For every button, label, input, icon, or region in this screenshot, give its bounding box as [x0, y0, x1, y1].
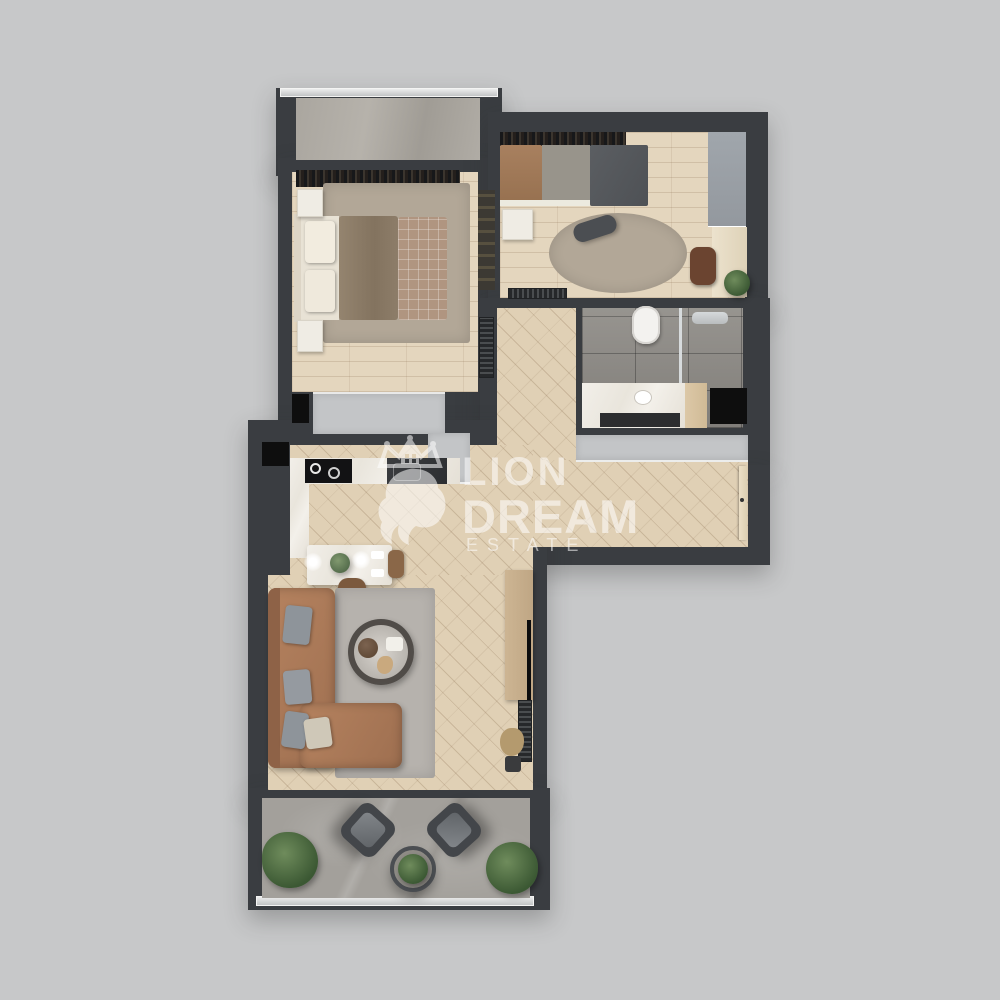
hall-closet-band [313, 392, 445, 434]
sofa-cushion [303, 716, 333, 749]
balcony-glass-railing [280, 88, 498, 97]
table-centerpiece [330, 553, 350, 573]
bedroom1-pillow [305, 270, 335, 312]
pendant-light [304, 553, 322, 571]
bedroom1-nightstand-top [297, 189, 323, 217]
entry-closet-band [576, 435, 748, 462]
bedroom1-nightstand-bottom [297, 320, 323, 352]
place-setting [371, 551, 384, 559]
terrace-table-plant [398, 854, 428, 884]
place-setting [371, 569, 384, 577]
bedroom1-door-opening [292, 394, 309, 423]
lion-crown-logo-icon [366, 434, 458, 548]
terrace-plant-left [262, 832, 318, 888]
terrace-plant-right [486, 842, 538, 894]
hallway-floor-corridor [497, 308, 576, 460]
utility-shaft-bathroom [710, 388, 747, 424]
sofa-backrest [268, 588, 280, 768]
entry-door [739, 466, 747, 540]
bedroom2-bed-sheet [542, 145, 590, 206]
vanity-under-counter [600, 413, 680, 427]
shower-fixture [692, 312, 728, 324]
pendant-light [352, 551, 370, 569]
floor-plan-render: LION DREAM ESTATE [0, 0, 1000, 1000]
shower-glass-panel [679, 308, 682, 385]
plant-pot [505, 756, 521, 772]
coffee-table-decor-bowl [358, 638, 378, 658]
bedroom1-pillow [305, 221, 335, 263]
bedroom1-plaid-duvet [398, 217, 447, 320]
bedroom2-blanket [590, 145, 648, 206]
dining-chair-right [388, 550, 404, 578]
bedroom1-blanket [339, 216, 398, 320]
bedroom1-radiator [479, 317, 494, 378]
bedroom1-bed-headboard [294, 214, 301, 322]
sofa-cushion [283, 669, 313, 705]
balcony-floor [296, 98, 480, 160]
tv-screen [527, 620, 531, 702]
cooktop-burner [328, 467, 340, 479]
watermark-brand-line3: ESTATE [466, 535, 587, 556]
coffee-table-tray [386, 637, 403, 651]
bathroom-sink [634, 390, 652, 405]
utility-shaft-kitchen [262, 442, 289, 466]
bedroom2-oval-rug [549, 213, 687, 293]
toilet [632, 306, 660, 344]
bedroom2-plant [724, 270, 750, 296]
cooktop-burner [310, 463, 321, 474]
bedroom2-pillows [500, 145, 542, 206]
bathroom-wood-cabinet [685, 383, 707, 428]
bedroom2-clothes-rack [500, 132, 626, 146]
bedroom2-wardrobe [708, 132, 746, 227]
sofa-cushion [282, 605, 313, 646]
bedroom2-radiator [508, 288, 567, 299]
bedroom2-desk-chair [690, 247, 716, 285]
bedroom1-shelf-unit [478, 190, 495, 290]
bedroom2-nightstand [502, 209, 533, 240]
bedroom2-bed-frame-edge [500, 200, 590, 206]
entry-door-handle [740, 498, 744, 502]
